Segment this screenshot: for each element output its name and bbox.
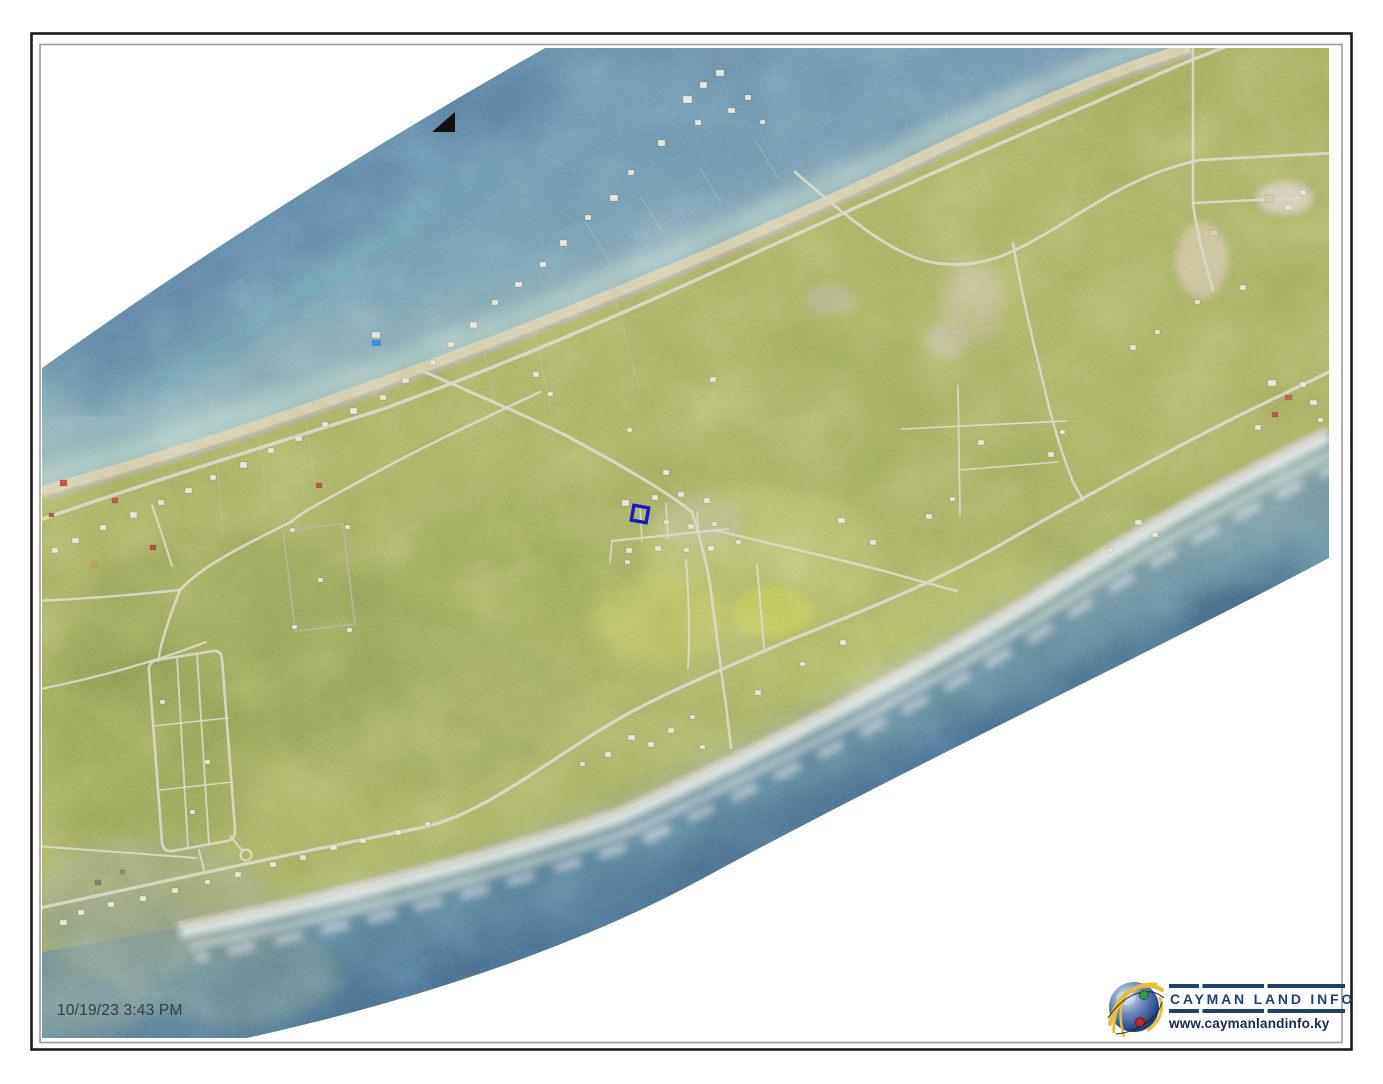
building — [270, 862, 276, 867]
building — [360, 838, 366, 843]
building — [1272, 412, 1278, 417]
building — [950, 497, 955, 501]
logo-title: CAYMAN LAND INFO — [1169, 988, 1345, 1009]
building — [185, 488, 192, 493]
building — [664, 520, 669, 524]
building — [1300, 382, 1306, 387]
building — [710, 377, 716, 382]
building — [684, 548, 689, 552]
building — [205, 760, 210, 764]
building — [300, 855, 306, 860]
building — [626, 548, 632, 553]
building — [78, 910, 84, 915]
building — [585, 215, 591, 220]
building — [736, 540, 741, 544]
building — [655, 546, 661, 551]
building — [1310, 400, 1317, 405]
building — [322, 422, 328, 427]
building — [425, 822, 430, 826]
building — [760, 120, 765, 124]
building — [683, 96, 692, 103]
building — [205, 880, 210, 884]
building — [60, 920, 67, 925]
building — [150, 545, 156, 550]
building — [1195, 300, 1200, 304]
building — [926, 514, 932, 519]
building — [92, 562, 98, 567]
building — [52, 548, 58, 553]
building — [158, 500, 164, 505]
building — [210, 475, 216, 480]
building — [716, 70, 724, 76]
building — [172, 888, 178, 893]
building — [704, 498, 710, 503]
building — [1318, 418, 1323, 422]
building — [140, 896, 146, 901]
building — [658, 140, 665, 146]
building — [72, 538, 79, 543]
building — [350, 408, 357, 414]
building — [700, 745, 705, 749]
building — [755, 690, 761, 695]
building — [318, 578, 323, 582]
building — [515, 282, 522, 287]
building — [838, 518, 845, 523]
building — [695, 120, 701, 125]
texture-noise — [0, 0, 1383, 1084]
building — [605, 752, 611, 757]
building — [663, 470, 669, 475]
building — [380, 395, 386, 400]
building — [668, 728, 674, 733]
building — [235, 872, 241, 877]
building — [1152, 532, 1158, 537]
building — [580, 762, 585, 766]
building — [708, 546, 714, 551]
building — [628, 170, 634, 175]
swimming-pool — [372, 340, 381, 346]
building — [492, 300, 498, 305]
building — [690, 715, 695, 719]
building — [870, 540, 876, 545]
building — [100, 525, 106, 530]
building — [470, 322, 477, 328]
building — [610, 195, 618, 201]
building — [95, 880, 101, 885]
building — [533, 372, 539, 377]
building — [1155, 330, 1160, 334]
building — [372, 332, 380, 338]
building — [295, 436, 302, 441]
building — [628, 735, 635, 740]
building — [688, 524, 694, 529]
building — [1210, 230, 1218, 236]
building — [540, 262, 546, 267]
building — [1130, 345, 1136, 350]
building — [1048, 452, 1054, 457]
building — [700, 82, 707, 88]
building — [402, 378, 409, 383]
building — [728, 108, 735, 113]
building — [1285, 395, 1292, 400]
building — [648, 742, 654, 747]
building — [108, 902, 114, 907]
map-timestamp: 10/19/23 3:43 PM — [57, 1002, 183, 1020]
cayman-land-info-logo: CAYMAN LAND INFO www.caymanlandinfo.ky — [1103, 969, 1351, 1045]
aerial-imagery[interactable] — [0, 0, 1383, 1084]
building — [240, 462, 247, 468]
building — [1285, 205, 1292, 210]
building — [745, 95, 751, 100]
building — [292, 625, 297, 629]
logo-website-link: www.caymanlandinfo.ky — [1169, 1013, 1345, 1031]
building — [1268, 380, 1276, 386]
building — [130, 512, 137, 518]
building — [712, 522, 717, 526]
building — [1135, 520, 1142, 525]
building — [1300, 190, 1306, 195]
building — [112, 498, 118, 503]
building — [1255, 425, 1261, 430]
building — [448, 342, 454, 347]
building — [1265, 195, 1274, 202]
building — [49, 513, 54, 517]
building — [548, 392, 553, 396]
building — [800, 662, 805, 666]
building — [627, 428, 632, 432]
building — [395, 830, 401, 835]
building — [1240, 285, 1246, 290]
globe-logo-icon — [1103, 971, 1167, 1043]
building — [316, 483, 322, 488]
building — [652, 495, 658, 500]
building — [1108, 548, 1113, 552]
building — [120, 870, 125, 874]
building — [60, 480, 67, 486]
building — [347, 628, 352, 632]
building — [1060, 430, 1065, 434]
building — [430, 360, 436, 365]
building — [625, 560, 630, 564]
building — [622, 500, 629, 506]
building — [840, 640, 846, 645]
building — [290, 528, 295, 532]
building — [190, 810, 195, 814]
building — [268, 448, 274, 453]
building — [330, 845, 337, 850]
map-page: 10/19/23 3:43 PM CAYMAN LAND INFO www.ca… — [0, 0, 1383, 1084]
building — [678, 492, 684, 497]
building — [345, 525, 350, 529]
building — [560, 240, 567, 246]
building — [160, 700, 165, 704]
building — [978, 440, 984, 445]
